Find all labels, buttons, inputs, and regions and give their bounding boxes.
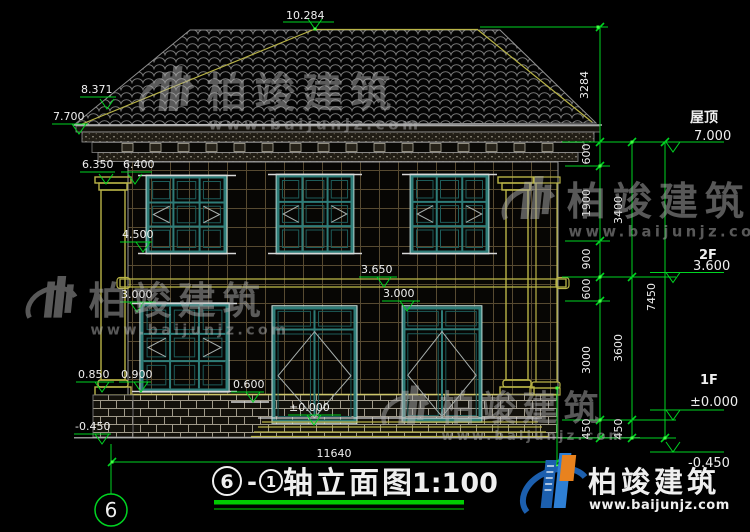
dim-right-600b: 600 [580, 279, 593, 300]
level-roof-value: 7.000 [694, 129, 731, 144]
title-axis-a: 6 [220, 471, 233, 493]
dim-plinth: 0.900 [121, 368, 153, 381]
dim-floor: ±0.000 [289, 401, 330, 414]
title-underline-thick [214, 500, 464, 505]
level-1f-value: ±0.000 [690, 395, 738, 410]
level-2f-value: 3.600 [693, 259, 730, 274]
title-scale: 1:100 [412, 468, 498, 499]
elevation-drawing: 柏竣建筑 www.baijunjz.com [0, 0, 750, 532]
dim-porch: 0.600 [233, 378, 265, 391]
dim-right-3600: 3600 [612, 334, 625, 362]
dim-cap-left: 6.350 [82, 158, 114, 171]
cornice-band-upper [82, 132, 594, 142]
cad-canvas: 柏竣建筑 www.baijunjz.com [0, 0, 750, 532]
level-1f-label: 1F [700, 373, 718, 388]
dim-right-7450: 7450 [645, 283, 658, 311]
axis-bubble-label: 6 [105, 498, 118, 522]
title-name: 轴立面图 [283, 466, 415, 501]
dim-ground: -0.450 [75, 420, 110, 433]
dim-sill-2f: 4.500 [122, 228, 154, 241]
dim-base-cap: 0.850 [78, 368, 110, 381]
dim-right-3000: 3000 [580, 346, 593, 374]
dim-hip: 8.371 [81, 83, 113, 96]
dentil-strip [92, 143, 584, 153]
dim-right-900: 900 [580, 249, 593, 270]
dim-band-top: 3.650 [361, 263, 393, 276]
watermark [28, 276, 289, 339]
dim-ridge: 10.284 [286, 9, 325, 22]
drawing-title: 6 - 1 轴立面图 1:100 [213, 466, 498, 509]
dim-right-3284: 3284 [578, 71, 591, 99]
level-roof-label: 屋顶 [690, 110, 718, 126]
cornice-band-lower [98, 153, 578, 162]
dim-eave: 7.700 [53, 110, 85, 123]
logo-url-text: www.baijunjz.com [589, 498, 730, 513]
logo-brand-text: 柏竣建筑 [588, 465, 720, 499]
title-separator: - [247, 468, 257, 496]
dim-right-600a: 600 [580, 144, 593, 165]
pilaster-left-base-cap [98, 380, 128, 387]
dim-overall-width: 11640 [317, 447, 352, 460]
title-axis-b: 1 [266, 473, 276, 491]
dim-ceiling-mid: 3.000 [383, 287, 415, 300]
dim-wall-top: 6.400 [123, 158, 155, 171]
